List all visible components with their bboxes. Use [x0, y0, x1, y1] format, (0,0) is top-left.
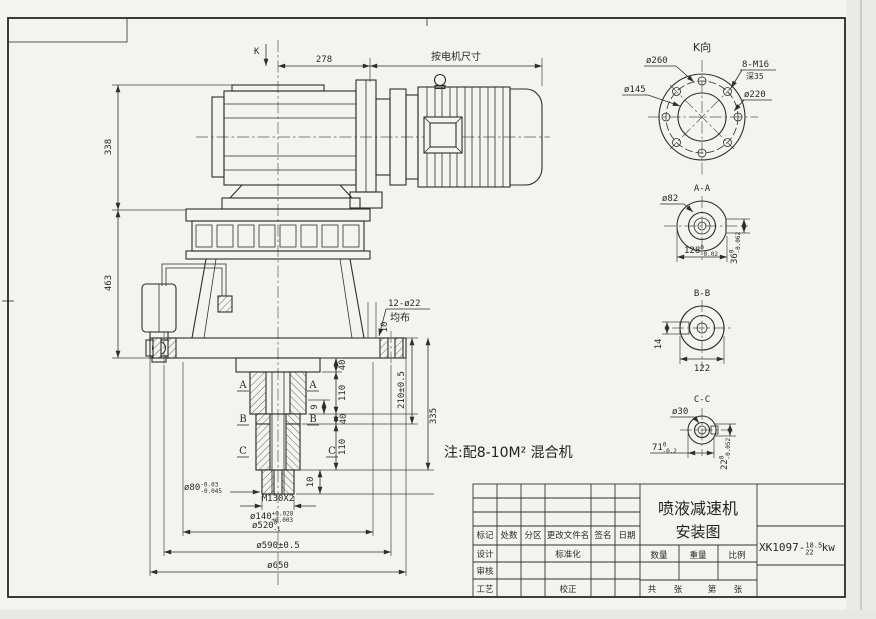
section-a-left: A: [238, 380, 247, 391]
label-total: 共: [648, 585, 657, 595]
dim-30: ø30: [672, 407, 688, 417]
section-b-left: B: [239, 414, 246, 425]
dim-110-lower: 110: [338, 439, 348, 455]
col-sign: 签名: [594, 530, 611, 541]
dim-220: ø220: [744, 90, 766, 100]
dim-520: ø5200-1: [252, 520, 281, 534]
drawing-sheet: A A B B C C K 278 按电机尺寸: [0, 0, 876, 619]
dim-590: ø590±0.5: [256, 541, 299, 551]
k-view-label: K向: [693, 40, 711, 54]
row-correct: 校正: [559, 584, 577, 595]
dim-338: 338: [104, 139, 114, 155]
dim-bolt-spec: 8-M16: [742, 60, 769, 70]
col-zone: 分区: [524, 531, 542, 541]
engineering-drawing: A A B B C C K 278 按电机尺寸: [0, 0, 876, 619]
dim-335: 335: [429, 408, 439, 424]
dim-40-top: 40: [338, 360, 348, 371]
dim-145: ø145: [624, 85, 646, 95]
drawing-title-line1: 喷液减速机: [658, 499, 738, 518]
label-scale: 比例: [728, 550, 745, 561]
cc-label: C-C: [694, 395, 710, 405]
dim-14: 14: [654, 339, 664, 350]
dim-122: 122: [694, 364, 710, 374]
dim-40-mid: 40: [339, 414, 349, 425]
dim-10-flange: 10: [380, 322, 390, 333]
row-design: 设计: [476, 549, 494, 560]
dim-10-tip: 10: [306, 477, 316, 488]
section-c-left: C: [239, 446, 247, 457]
section-b-right: B: [309, 414, 316, 425]
dim-per-motor: 按电机尺寸: [431, 50, 481, 63]
dim-holes-evenly: 均布: [390, 312, 410, 324]
dim-463: 463: [104, 275, 114, 291]
drawing-title-line2: 安装图: [675, 523, 720, 541]
row-process: 工艺: [476, 585, 493, 595]
col-mark: 标记: [476, 530, 494, 541]
dim-210: 210±0.5: [397, 371, 407, 409]
bb-label: B-B: [694, 289, 710, 299]
section-a-right: A: [308, 380, 317, 391]
dim-260: ø260: [646, 56, 668, 66]
k-arrow-label: K: [254, 47, 260, 57]
label-weight: 重量: [689, 550, 707, 561]
dim-9: 9: [310, 404, 320, 409]
row-check: 审核: [476, 566, 494, 577]
dim-12-holes: 12-ø22: [388, 299, 421, 309]
label-sheets-a: 张: [674, 585, 683, 595]
col-count: 处数: [500, 530, 518, 541]
row-standard: 标准化: [555, 549, 581, 560]
aa-label: A-A: [694, 184, 711, 194]
dim-110-upper: 110: [338, 385, 348, 401]
dim-bolt-depth: 深35: [746, 72, 764, 81]
dim-bore-80: ø80-0.03-0.045: [184, 482, 222, 496]
label-quantity: 数量: [650, 550, 668, 561]
dim-82: ø82: [662, 194, 678, 204]
drawing-note: 注:配8-10M² 混合机: [444, 445, 573, 461]
section-c-right: C: [328, 446, 336, 457]
label-page: 第: [708, 584, 717, 595]
label-sheets-b: 张: [734, 585, 743, 595]
dim-278: 278: [316, 55, 332, 65]
dim-650: ø650: [267, 561, 289, 571]
col-date: 日期: [618, 531, 635, 541]
col-file: 更改文件名: [547, 530, 590, 541]
dim-thread-m130: M130X2: [262, 494, 295, 504]
